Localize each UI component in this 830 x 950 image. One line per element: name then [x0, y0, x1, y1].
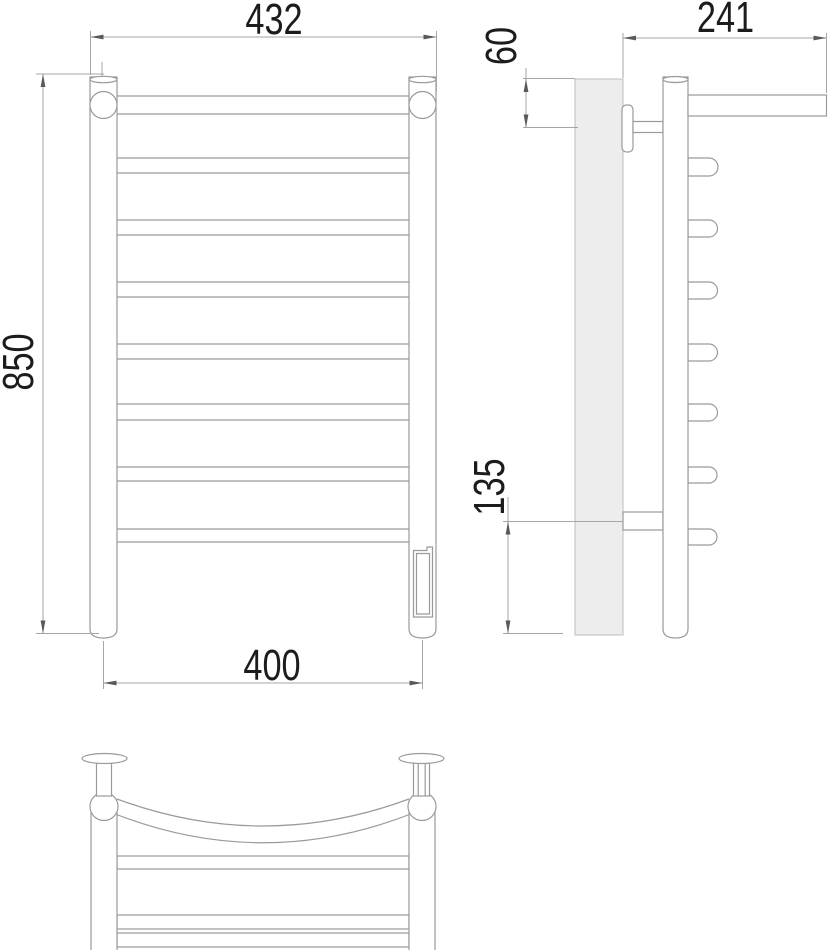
- front-right-bracket-circle: [409, 92, 436, 119]
- overall-width-label: 432: [245, 0, 302, 44]
- front-view: [90, 76, 436, 638]
- dim-135-arrow-bottom: [506, 621, 511, 634]
- bottom-bar-2: [117, 915, 409, 929]
- side-rung-stubs: [688, 158, 718, 545]
- bottom-mount-offset-label: 135: [465, 458, 514, 515]
- dim-overall-depth: 241: [623, 0, 827, 93]
- side-top-shelf-bar: [688, 95, 827, 116]
- side-view: [575, 77, 827, 639]
- overall-depth-label: 241: [697, 0, 754, 42]
- dim-60-extension-lines: [523, 79, 578, 128]
- rung-8: [117, 529, 409, 542]
- rung-6: [117, 404, 409, 420]
- dim-135-arrow-top: [506, 522, 511, 535]
- dim-850-arrow-bottom: [41, 621, 46, 634]
- bottom-bar-1: [117, 856, 409, 869]
- top-mount-offset-label: 60: [477, 27, 526, 65]
- towel-rail-drawing: 432 850 400 241 60 135: [0, 0, 830, 950]
- dim-overall-width: 432: [91, 0, 437, 92]
- bottom-right-mount-cap: [399, 754, 444, 764]
- stub-rung-3: [688, 220, 718, 237]
- rung-3: [117, 220, 409, 235]
- side-post: [663, 77, 688, 638]
- mounting-width-label: 400: [243, 641, 300, 690]
- technical-drawing-page: 432 850 400 241 60 135: [0, 0, 830, 950]
- dim-mounting-width: 400: [104, 640, 423, 690]
- bottom-left-mount-stem: [97, 760, 112, 796]
- front-left-bracket-circle: [90, 92, 117, 119]
- front-rungs: [117, 96, 409, 542]
- bottom-left-bracket-circle: [90, 793, 118, 821]
- side-post-top-cap: [663, 77, 688, 83]
- rung-2: [117, 158, 409, 173]
- front-left-post-top-cap: [90, 76, 117, 82]
- bottom-right-mount-stem: [414, 760, 430, 796]
- rung-7: [117, 467, 409, 481]
- overall-height-label: 850: [0, 333, 43, 390]
- side-lower-bracket: [623, 512, 663, 530]
- dim-overall-height: 850: [0, 62, 104, 634]
- bottom-right-bracket-circle: [408, 793, 436, 821]
- stub-rung-7: [688, 467, 717, 483]
- bottom-view: [82, 754, 444, 950]
- dim-241-arrow-right: [814, 36, 827, 41]
- dim-400-arrow-right: [410, 681, 423, 686]
- dim-top-mount-offset: 60: [477, 27, 578, 128]
- stub-rung-6: [688, 404, 718, 421]
- bottom-right-post: [409, 812, 435, 950]
- bottom-left-post: [91, 812, 117, 950]
- dim-432-arrow-left: [91, 35, 104, 40]
- bottom-left-mount-cap: [82, 754, 127, 764]
- dim-850-arrow-top: [41, 74, 46, 87]
- curved-rung-upper-arc: [117, 799, 409, 826]
- bottom-bar-3: [117, 933, 409, 947]
- front-left-post: [90, 77, 117, 638]
- stub-rung-2: [688, 158, 718, 176]
- dim-241-arrow-left: [623, 36, 636, 41]
- curved-rung-lower-arc: [114, 814, 412, 843]
- dim-400-arrow-left: [104, 681, 117, 686]
- rung-4: [117, 282, 409, 297]
- wall-section: [575, 79, 623, 635]
- stub-rung-5: [688, 344, 718, 361]
- rung-5: [117, 344, 409, 359]
- dim-60-arrow-bottom: [524, 115, 529, 128]
- dim-60-arrow-top: [524, 79, 529, 92]
- dim-432-arrow-right: [424, 35, 437, 40]
- stub-rung-8: [688, 529, 717, 545]
- front-right-post-top-cap: [409, 76, 436, 82]
- side-upper-bracket-flange: [622, 105, 633, 152]
- stub-rung-4: [688, 282, 718, 299]
- heating-element-housing: [414, 547, 433, 617]
- rung-1: [117, 96, 409, 114]
- stem-outline: [414, 760, 430, 796]
- side-upper-bracket-stem: [633, 122, 663, 133]
